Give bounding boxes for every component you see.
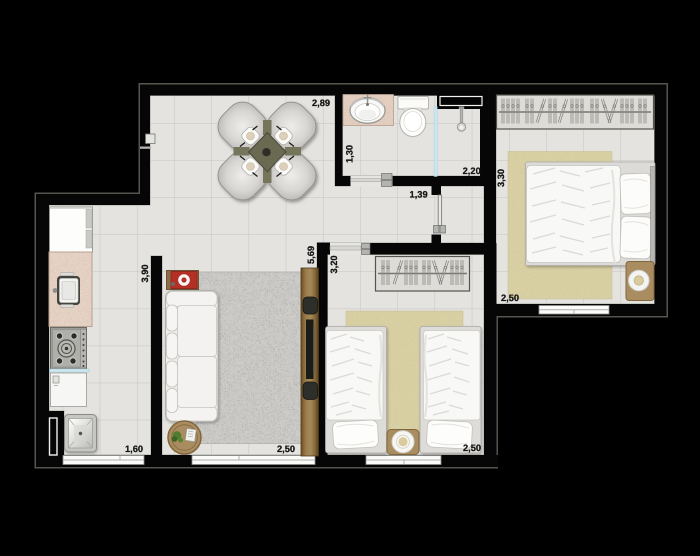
svg-text:2,50: 2,50 (501, 293, 519, 303)
svg-text:1,39: 1,39 (410, 189, 428, 199)
svg-text:2,50: 2,50 (463, 443, 481, 453)
svg-text:1,30: 1,30 (345, 145, 355, 163)
svg-text:5,69: 5,69 (306, 246, 316, 264)
svg-text:2,89: 2,89 (312, 98, 330, 108)
svg-text:2,50: 2,50 (277, 444, 295, 454)
svg-text:3,20: 3,20 (329, 255, 339, 273)
svg-text:3,30: 3,30 (496, 169, 506, 187)
svg-text:2,20: 2,20 (463, 166, 481, 176)
svg-text:1,60: 1,60 (125, 444, 143, 454)
svg-text:3,90: 3,90 (140, 264, 150, 282)
